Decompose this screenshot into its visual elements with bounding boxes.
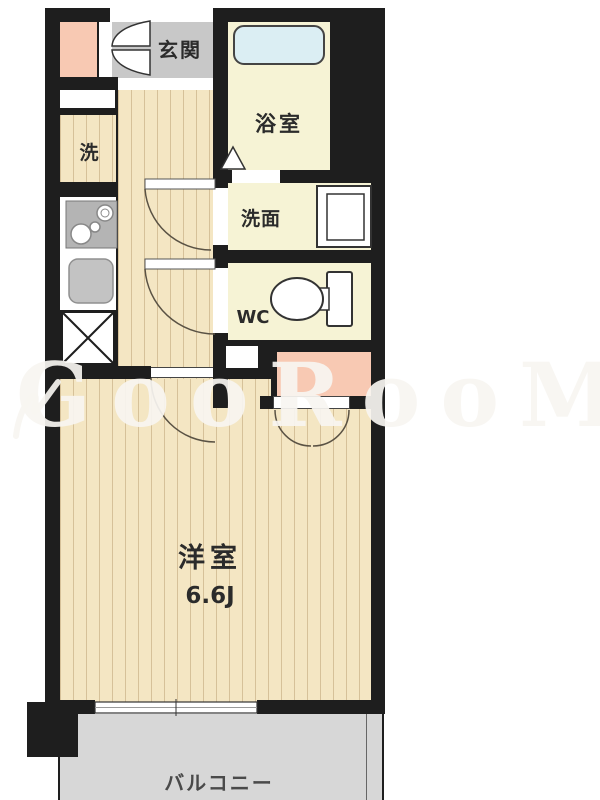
bathroom-floor [228,22,330,170]
genkan-label: 玄関 [145,34,215,63]
floor-plan: 玄関 浴室 洗 洗面 WC 洋室 6.6J バルコニー GooRooM [0,0,600,800]
wall-block [45,182,118,197]
kitchen-counter [60,197,116,310]
bathroom-label: 浴室 [238,108,320,138]
balcony-label: バルコニー [58,767,380,796]
hallway-floor [118,90,213,379]
entrance-opening [110,8,213,22]
wall-washroom-bottom [213,250,385,263]
wc-floor [228,263,371,340]
pillar [27,702,78,757]
wall-bottom-right [257,700,385,714]
wall-bathroom-left [213,8,228,183]
bathroom-door-opening [232,170,280,183]
pipe-shaft [330,8,385,183]
washroom-door-opening [213,188,228,245]
washroom-label: 洗面 [230,204,292,231]
wall-niche [60,90,115,108]
entry-door-slab [99,20,110,76]
main-room-label: 洋室 [60,536,360,575]
wc-label: WC [231,307,275,328]
genkan-step [113,78,213,90]
main-room-size-label: 6.6J [60,583,360,609]
watermark-text: GooRooM [16,349,600,449]
wc-door-opening [213,268,228,333]
wall-thin [116,115,118,379]
shoe-cabinet [60,18,97,77]
laundry-label: 洗 [78,138,100,165]
